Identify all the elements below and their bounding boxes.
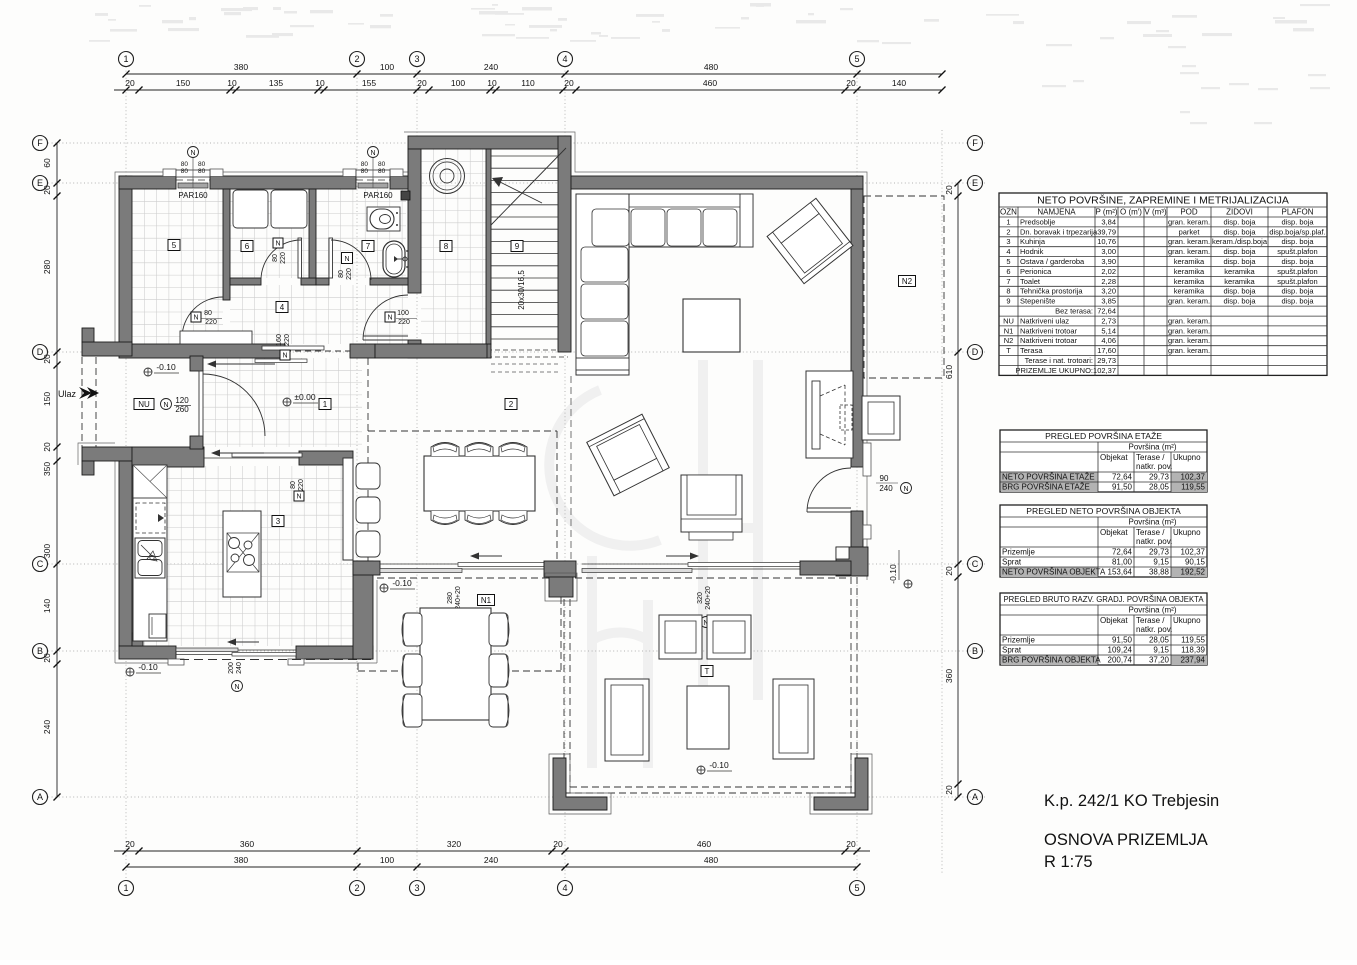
svg-text:20: 20 [564,78,574,88]
svg-text:disp. boja: disp. boja [1281,217,1314,226]
svg-text:NETO POVRŠINE, ZAPREMINE I MET: NETO POVRŠINE, ZAPREMINE I METRIJALIZACI… [1037,194,1289,207]
svg-text:Terase /: Terase / [1136,453,1165,462]
svg-text:PAR160: PAR160 [178,191,208,200]
svg-text:3,90: 3,90 [1101,257,1116,266]
svg-text:220: 220 [298,479,305,491]
svg-text:200: 200 [228,662,235,674]
svg-text:220: 220 [205,319,217,326]
svg-text:90: 90 [880,474,889,483]
svg-text:300: 300 [42,544,52,558]
svg-text:80: 80 [181,168,189,175]
svg-text:V (m³): V (m³) [1144,208,1167,217]
svg-text:-0.10: -0.10 [709,760,729,770]
svg-text:Toalet: Toalet [1020,277,1041,286]
svg-text:72,64: 72,64 [1097,307,1116,316]
svg-text:A: A [37,792,43,802]
svg-text:380: 380 [234,62,248,72]
svg-text:Objekat: Objekat [1100,616,1128,625]
svg-text:N: N [163,402,168,409]
svg-text:37,20: 37,20 [1149,656,1170,665]
svg-text:BRG POVRŠINA OBJEKTA: BRG POVRŠINA OBJEKTA [1002,656,1101,665]
svg-text:spušt.plafon: spušt.plafon [1277,267,1317,276]
svg-text:N: N [275,240,280,247]
svg-text:N: N [903,486,908,493]
svg-text:8: 8 [1006,287,1010,296]
svg-text:OSNOVA PRIZEMLJA: OSNOVA PRIZEMLJA [1044,831,1208,849]
svg-text:parket: parket [1179,227,1201,236]
svg-text:gran. keram.: gran. keram. [1168,217,1210,226]
svg-text:9,15: 9,15 [1153,558,1169,567]
svg-text:4: 4 [562,883,567,893]
svg-text:P (m²): P (m²) [1095,208,1117,217]
svg-text:gran. keram.: gran. keram. [1168,326,1210,335]
svg-text:A: A [972,792,978,802]
svg-text:240+20: 240+20 [705,586,712,610]
svg-text:1: 1 [123,54,128,64]
svg-text:100: 100 [380,62,394,72]
svg-text:135: 135 [269,78,283,88]
svg-text:N: N [296,493,301,500]
svg-text:2: 2 [354,54,359,64]
svg-text:91,50: 91,50 [1112,483,1133,492]
svg-text:20: 20 [944,785,954,795]
svg-text:20: 20 [553,839,563,849]
svg-text:91,50: 91,50 [1112,636,1133,645]
svg-text:disp. boja: disp. boja [1281,237,1314,246]
svg-text:100: 100 [397,310,409,317]
svg-text:80: 80 [198,161,206,168]
svg-text:disp. boja: disp. boja [1281,287,1314,296]
svg-text:B: B [972,646,978,656]
svg-text:80: 80 [198,168,206,175]
svg-text:350: 350 [42,462,52,476]
svg-text:360: 360 [944,669,954,683]
svg-text:Terasa: Terasa [1020,346,1043,355]
svg-text:280: 280 [42,260,52,274]
svg-text:80: 80 [361,161,369,168]
svg-text:keram./disp.boja: keram./disp.boja [1212,237,1268,246]
svg-text:Natkriveni trotoar: Natkriveni trotoar [1020,326,1078,335]
svg-text:Sprat: Sprat [1002,558,1022,567]
svg-text:140: 140 [42,599,52,613]
svg-text:160: 160 [276,334,283,346]
svg-text:Natkriveni trotoar: Natkriveni trotoar [1020,336,1078,345]
svg-text:Prizemlje: Prizemlje [1002,548,1035,557]
svg-text:20: 20 [846,839,856,849]
svg-text:192,52: 192,52 [1181,568,1206,577]
svg-text:3,85: 3,85 [1101,297,1116,306]
svg-text:Površina (m²): Površina (m²) [1128,443,1176,452]
svg-text:F: F [972,138,978,148]
svg-text:2: 2 [1006,227,1010,236]
svg-text:2,73: 2,73 [1101,316,1116,325]
svg-text:3: 3 [414,883,419,893]
svg-text:5: 5 [172,241,177,250]
svg-text:Ukupno: Ukupno [1173,616,1201,625]
svg-text:PLAFON: PLAFON [1281,208,1313,217]
svg-text:480: 480 [704,62,718,72]
svg-text:6: 6 [245,242,250,251]
svg-text:155: 155 [362,78,376,88]
svg-text:C: C [37,559,44,569]
svg-text:Terase /: Terase / [1136,528,1165,537]
svg-text:118,39: 118,39 [1181,646,1205,655]
svg-text:Dn. boravak i trpezarija: Dn. boravak i trpezarija [1020,227,1098,236]
svg-text:120: 120 [175,396,189,405]
svg-text:disp. boja: disp. boja [1223,287,1256,296]
svg-text:Hodnik: Hodnik [1020,247,1044,256]
svg-text:N1: N1 [481,596,492,605]
svg-text:5: 5 [1006,257,1010,266]
svg-text:80: 80 [338,270,345,278]
svg-text:7: 7 [366,242,371,251]
svg-text:disp. boja: disp. boja [1281,297,1314,306]
svg-text:4: 4 [1006,247,1010,256]
svg-text:natkr. pov.: natkr. pov. [1136,625,1172,634]
svg-text:disp. boja: disp. boja [1223,217,1256,226]
svg-text:28,05: 28,05 [1149,636,1170,645]
svg-text:102,37: 102,37 [1093,366,1116,375]
svg-text:4: 4 [562,54,567,64]
svg-text:spušt.plafon: spušt.plafon [1277,277,1317,286]
svg-text:gran. keram.: gran. keram. [1168,247,1210,256]
svg-text:3,84: 3,84 [1101,217,1116,226]
svg-text:102,37: 102,37 [1181,473,1206,482]
svg-text:Terase i nat. trotoari:: Terase i nat. trotoari: [1025,356,1093,365]
svg-text:Ostava / garderoba: Ostava / garderoba [1020,257,1085,266]
svg-text:39,79: 39,79 [1097,227,1116,236]
svg-text:Predsoblje: Predsoblje [1020,217,1055,226]
svg-text:20: 20 [125,839,135,849]
svg-text:keramika: keramika [1174,267,1205,276]
svg-text:gran. keram.: gran. keram. [1168,336,1210,345]
svg-text:2,28: 2,28 [1101,277,1116,286]
svg-text:disp.boja/sp.plaf.: disp.boja/sp.plaf. [1269,227,1325,236]
svg-text:N1: N1 [1004,326,1014,335]
svg-text:5,14: 5,14 [1101,326,1116,335]
svg-text:BRG POVRŠINA ETAŽE: BRG POVRŠINA ETAŽE [1002,483,1090,492]
svg-text:3,20: 3,20 [1101,287,1116,296]
svg-text:-0.10: -0.10 [138,662,158,672]
svg-text:-0.10: -0.10 [888,564,898,584]
svg-text:240: 240 [236,662,243,674]
svg-text:O (m′): O (m′) [1120,208,1142,217]
svg-text:N: N [344,256,349,263]
svg-text:81,00: 81,00 [1112,558,1133,567]
svg-text:220: 220 [284,334,291,346]
svg-text:480: 480 [704,855,718,865]
svg-text:Natkriveni ulaz: Natkriveni ulaz [1020,316,1069,325]
svg-text:disp. boja: disp. boja [1281,257,1314,266]
svg-text:460: 460 [703,78,717,88]
svg-text:Ukupno: Ukupno [1173,528,1201,537]
svg-text:PRIZEMLJE UKUPNO:: PRIZEMLJE UKUPNO: [1015,366,1093,375]
svg-text:200,74: 200,74 [1108,656,1133,665]
svg-text:Prizemlje: Prizemlje [1002,636,1035,645]
svg-text:9,15: 9,15 [1153,646,1169,655]
svg-text:F: F [37,138,43,148]
svg-text:Terase /: Terase / [1136,616,1165,625]
svg-text:PAR160: PAR160 [363,191,393,200]
svg-text:1: 1 [123,883,128,893]
svg-text:Površina (m²): Površina (m²) [1128,518,1176,527]
svg-text:100: 100 [451,78,465,88]
svg-text:102,37: 102,37 [1181,548,1206,557]
svg-text:N2: N2 [1004,336,1014,345]
svg-text:90,15: 90,15 [1185,558,1206,567]
svg-text:disp. boja: disp. boja [1223,227,1256,236]
svg-text:NU: NU [138,400,150,409]
svg-text:150: 150 [42,392,52,406]
svg-text:3: 3 [414,54,419,64]
svg-text:keramika: keramika [1174,287,1205,296]
svg-text:disp. boja: disp. boja [1223,297,1256,306]
svg-text:20: 20 [417,78,427,88]
svg-text:38,88: 38,88 [1149,568,1170,577]
svg-text:119,55: 119,55 [1181,636,1205,645]
svg-text:Objekat: Objekat [1100,528,1128,537]
svg-text:10: 10 [315,78,325,88]
svg-text:2: 2 [354,883,359,893]
svg-text:N: N [190,150,195,157]
svg-text:10: 10 [487,78,497,88]
svg-text:20: 20 [846,78,856,88]
svg-text:220: 220 [346,268,353,280]
svg-text:NETO POVRŠINA OBJEKTA: NETO POVRŠINA OBJEKTA [1002,568,1106,577]
svg-text:80: 80 [272,254,279,262]
svg-text:gran. keram.: gran. keram. [1168,237,1210,246]
svg-text:Objekat: Objekat [1100,453,1128,462]
svg-text:D: D [972,347,979,357]
svg-text:1: 1 [1006,217,1010,226]
svg-text:80: 80 [181,161,189,168]
svg-text:220: 220 [280,252,287,264]
svg-text:Stepenište: Stepenište [1020,297,1055,306]
svg-text:80: 80 [361,168,369,175]
svg-text:OZN: OZN [1000,208,1017,217]
svg-text:T: T [705,667,710,676]
svg-text:N2: N2 [902,277,913,286]
svg-text:-0.10: -0.10 [392,578,412,588]
svg-text:72,64: 72,64 [1112,473,1133,482]
svg-text:220: 220 [398,319,410,326]
svg-text:20: 20 [944,566,954,576]
svg-text:119,55: 119,55 [1181,483,1205,492]
svg-text:Površina (m²): Površina (m²) [1128,606,1176,615]
svg-text:260: 260 [175,405,189,414]
svg-text:keramika: keramika [1174,277,1205,286]
svg-text:ZIDOVI: ZIDOVI [1226,208,1253,217]
svg-text:-0.10: -0.10 [156,362,176,372]
svg-text:10,76: 10,76 [1097,237,1116,246]
svg-text:2,02: 2,02 [1101,267,1116,276]
svg-text:240: 240 [484,62,498,72]
svg-text:gran. keram.: gran. keram. [1168,346,1210,355]
svg-text:28,05: 28,05 [1149,483,1170,492]
svg-text:140: 140 [892,78,906,88]
svg-text:keramika: keramika [1224,267,1255,276]
svg-text:keramika: keramika [1174,257,1205,266]
svg-text:Ulaz: Ulaz [58,389,77,399]
svg-text:T: T [1006,346,1011,355]
svg-text:Tehnička prostorija: Tehnička prostorija [1020,287,1083,296]
svg-text:Kuhinja: Kuhinja [1020,237,1046,246]
svg-text:20: 20 [125,78,135,88]
svg-text:80: 80 [204,310,212,317]
svg-text:60: 60 [42,158,52,168]
svg-text:NETO POVRŠINA ETAŽE: NETO POVRŠINA ETAŽE [1002,473,1095,482]
svg-text:29,73: 29,73 [1149,548,1170,557]
svg-text:spušt.plafon: spušt.plafon [1277,247,1317,256]
svg-text:9: 9 [515,242,520,251]
svg-text:29,73: 29,73 [1149,473,1170,482]
svg-text:72,64: 72,64 [1112,548,1133,557]
svg-text:153,64: 153,64 [1108,568,1133,577]
svg-text:20x30/16,5: 20x30/16,5 [517,270,526,310]
svg-text:5: 5 [854,54,859,64]
svg-text:610: 610 [944,365,954,379]
svg-text:240: 240 [484,855,498,865]
svg-text:110: 110 [521,78,535,88]
svg-text:3: 3 [1006,237,1010,246]
svg-text:gran. keram.: gran. keram. [1168,316,1210,325]
svg-text:NU: NU [1003,316,1014,325]
svg-text:N: N [370,150,375,157]
svg-text:3,00: 3,00 [1101,247,1116,256]
svg-text:320: 320 [447,839,461,849]
svg-text:237,94: 237,94 [1181,656,1206,665]
svg-text:5: 5 [854,883,859,893]
svg-text:150: 150 [176,78,190,88]
svg-text:4: 4 [280,303,285,312]
svg-text:Bez terasa:: Bez terasa: [1055,307,1093,316]
svg-text:E: E [972,178,978,188]
svg-text:6: 6 [1006,267,1010,276]
svg-text:PREGLED POVRŠINA ETAŽE: PREGLED POVRŠINA ETAŽE [1045,431,1162,441]
svg-text:N: N [193,314,198,321]
svg-text:460: 460 [697,839,711,849]
svg-text:disp. boja: disp. boja [1223,257,1256,266]
svg-text:80: 80 [378,168,386,175]
svg-text:20: 20 [944,185,954,195]
svg-text:380: 380 [234,855,248,865]
svg-text:disp. boja: disp. boja [1223,247,1256,256]
svg-text:±0.00: ±0.00 [294,392,315,402]
svg-text:240: 240 [879,484,893,493]
svg-text:9: 9 [1006,297,1010,306]
svg-text:R 1:75: R 1:75 [1044,853,1093,871]
svg-text:N: N [387,314,392,321]
svg-text:8: 8 [444,242,449,251]
svg-text:20: 20 [42,185,52,195]
svg-text:NAMJENA: NAMJENA [1037,208,1076,217]
svg-text:20: 20 [42,354,52,364]
svg-text:20: 20 [42,653,52,663]
svg-text:natkr. pov.: natkr. pov. [1136,462,1172,471]
svg-text:PREGLED BRUTO RAZV. GRADJ. POV: PREGLED BRUTO RAZV. GRADJ. POVRŠINA OBJE… [1004,594,1204,604]
svg-text:gran. keram.: gran. keram. [1168,297,1210,306]
svg-text:4,06: 4,06 [1101,336,1116,345]
svg-text:100: 100 [380,855,394,865]
svg-text:280: 280 [447,592,454,604]
svg-text:29,73: 29,73 [1097,356,1116,365]
svg-text:C: C [972,559,979,569]
svg-text:N: N [234,684,239,691]
svg-text:Sprat: Sprat [1002,646,1022,655]
svg-text:80: 80 [290,481,297,489]
svg-text:7: 7 [1006,277,1010,286]
svg-text:80: 80 [378,161,386,168]
svg-text:1: 1 [323,400,328,409]
svg-text:natkr. pov.: natkr. pov. [1136,537,1172,546]
svg-text:Perionica: Perionica [1020,267,1052,276]
svg-text:3: 3 [276,517,281,526]
svg-text:PREGLED NETO POVRŠINA OBJEKTA: PREGLED NETO POVRŠINA OBJEKTA [1026,506,1181,516]
svg-text:240: 240 [42,720,52,734]
svg-text:109,24: 109,24 [1108,646,1133,655]
svg-text:320: 320 [697,592,704,604]
svg-text:360: 360 [240,839,254,849]
svg-text:2: 2 [509,400,514,409]
svg-text:N: N [282,352,287,359]
svg-text:K.p. 242/1 KO Trebjesin: K.p. 242/1 KO Trebjesin [1044,792,1219,810]
svg-text:POD: POD [1180,208,1198,217]
svg-text:10: 10 [227,78,237,88]
svg-text:17,60: 17,60 [1097,346,1116,355]
svg-text:Ukupno: Ukupno [1173,453,1201,462]
svg-text:240+20: 240+20 [455,586,462,610]
svg-text:20: 20 [42,442,52,452]
svg-text:keramika: keramika [1224,277,1255,286]
